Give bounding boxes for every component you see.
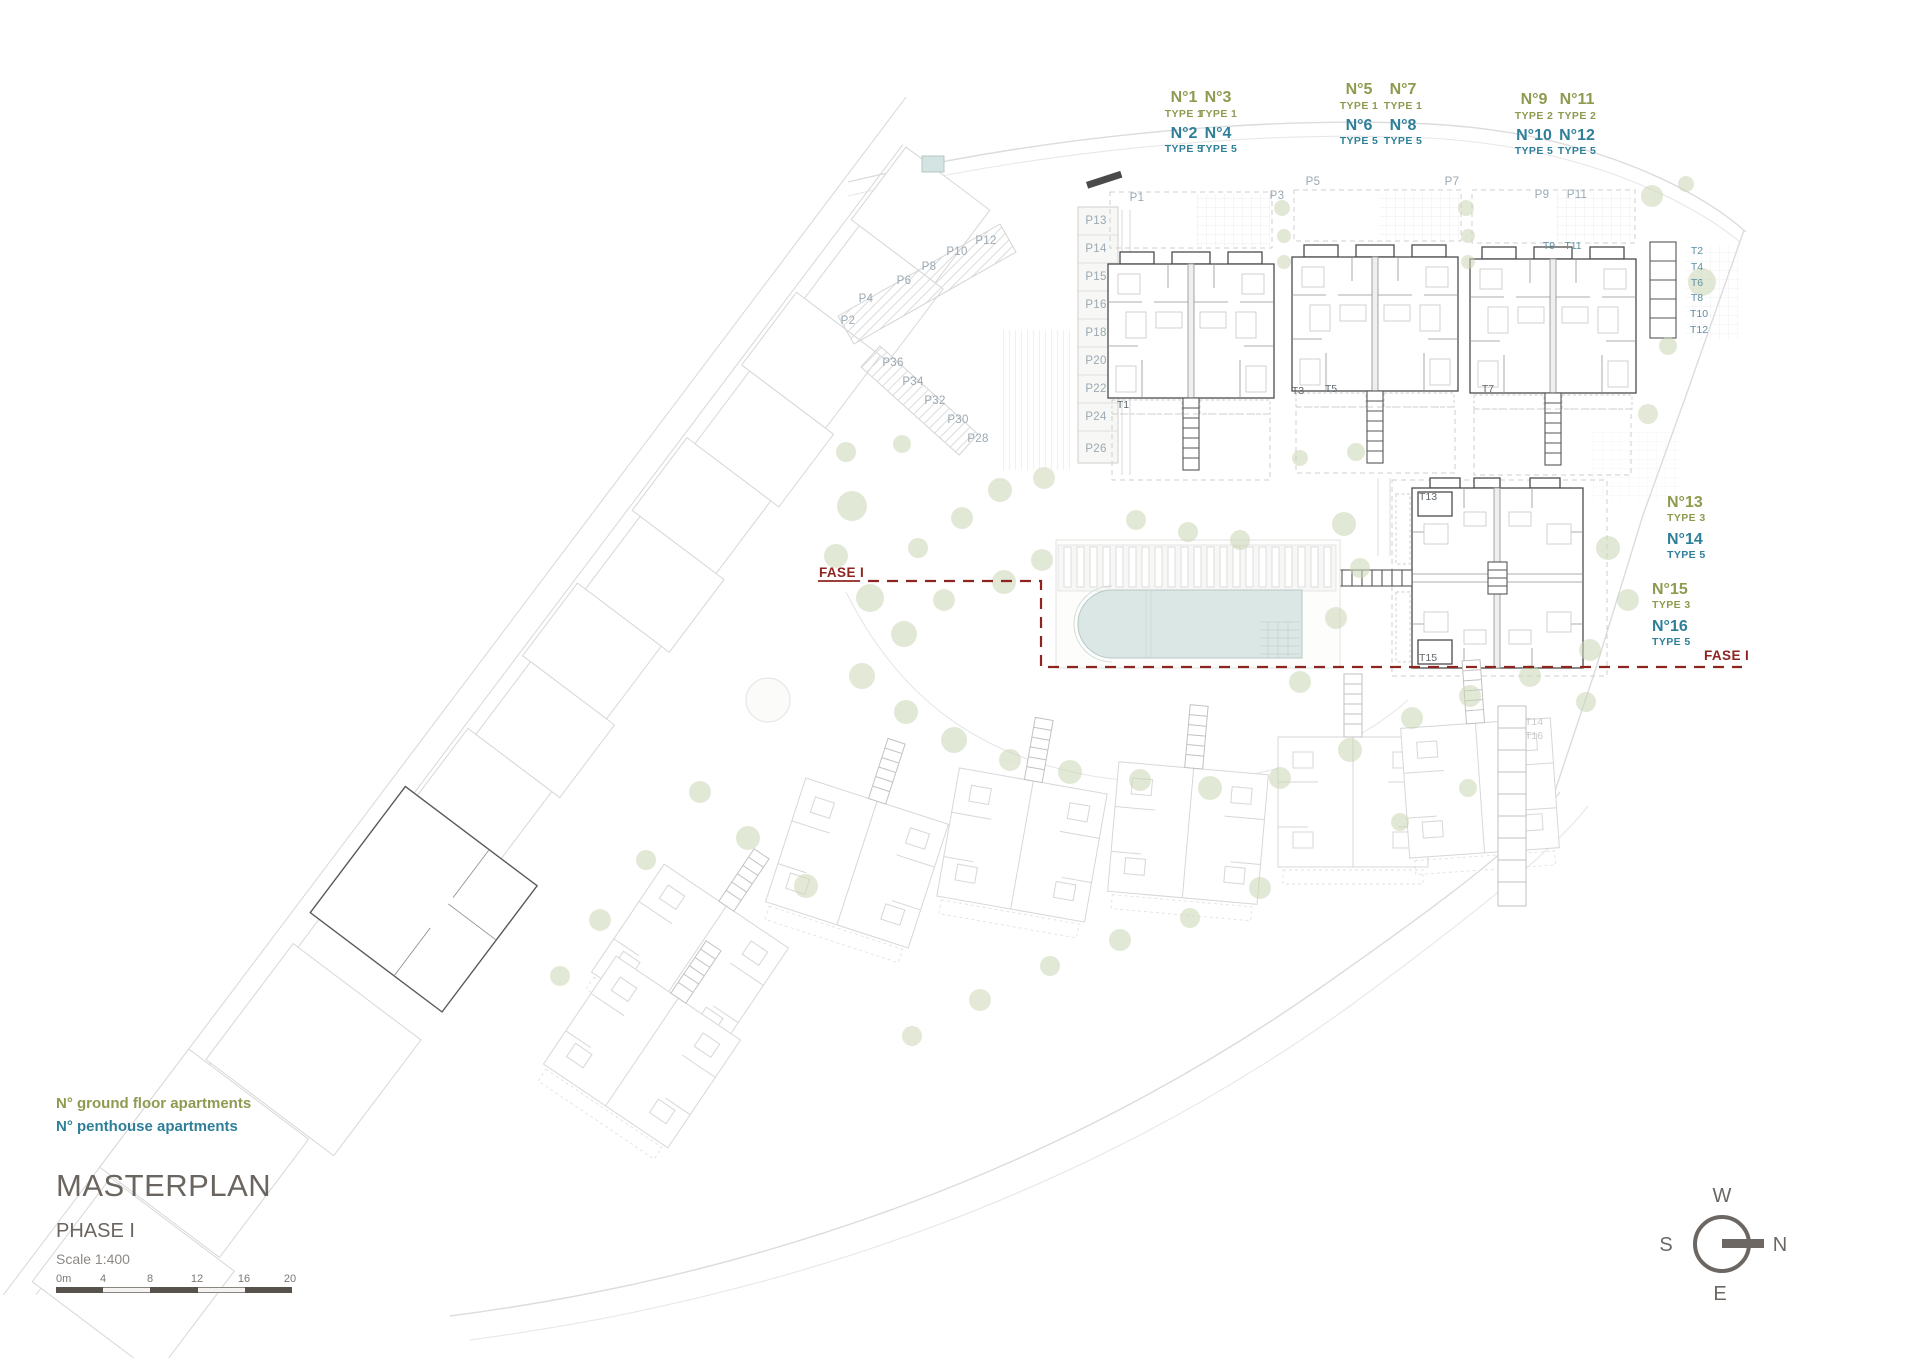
terrace-label: T10	[1690, 308, 1708, 320]
apartment-type-ground: TYPE 1	[1340, 100, 1379, 112]
small-pool	[922, 156, 944, 172]
parking-label: P18	[1085, 327, 1106, 339]
phase-boundary-label-left: FASE I	[819, 565, 864, 580]
parking-label: P22	[1085, 383, 1106, 395]
apartment-type-ground: TYPE 2	[1515, 110, 1554, 122]
parking-label: P24	[1085, 411, 1107, 423]
scale-label: Scale 1:400	[56, 1251, 396, 1267]
page-title: MASTERPLAN	[56, 1168, 396, 1204]
apartment-number-penthouse: N°10	[1516, 127, 1552, 144]
terrace-label: T8	[1691, 292, 1703, 304]
apartment-type-ground: TYPE 1	[1165, 108, 1204, 120]
terrace-label: T3	[1292, 385, 1304, 397]
terrace-label: T16	[1525, 730, 1543, 742]
scale-tick: 0m	[56, 1273, 71, 1285]
parking-label: P34	[902, 376, 924, 388]
parking-label: P28	[967, 433, 988, 445]
legend-ground-floor: N° ground floor apartments	[56, 1092, 396, 1115]
apartment-type-ground: TYPE 3	[1652, 599, 1691, 611]
parking-label: P2	[841, 315, 856, 327]
scale-tick: 8	[147, 1273, 153, 1285]
apartment-number-ground: N°7	[1390, 81, 1417, 98]
parking-label: P12	[975, 235, 996, 247]
apartment-type-penthouse: TYPE 5	[1558, 145, 1597, 157]
scale-bar: 0m 4 8 12 16 20	[56, 1273, 292, 1295]
compass-needle	[1722, 1239, 1764, 1248]
apartment-number-ground: N°5	[1346, 81, 1373, 98]
terrace-label: T1	[1117, 399, 1129, 411]
phase-boundary-label-right: FASE I	[1704, 648, 1749, 663]
apartment-type-penthouse: TYPE 5	[1340, 135, 1379, 147]
parking-label: P3	[1270, 190, 1285, 202]
apartment-number-ground: N°3	[1205, 89, 1232, 106]
apartment-type-penthouse: TYPE 5	[1667, 549, 1706, 561]
apartment-number-penthouse: N°6	[1346, 117, 1373, 134]
terrace-label: T12	[1690, 324, 1708, 336]
compass-east: E	[1713, 1283, 1726, 1305]
terrace-label: T4	[1691, 261, 1703, 273]
apartment-type-penthouse: TYPE 5	[1384, 135, 1423, 147]
apartment-number-ground: N°15	[1652, 581, 1688, 598]
pool-area	[1056, 540, 1340, 668]
stair-strip-east	[1650, 242, 1676, 338]
apartment-type-penthouse: TYPE 5	[1165, 143, 1204, 155]
scale-bar-segments	[56, 1287, 292, 1293]
apartment-type-penthouse: TYPE 5	[1199, 143, 1238, 155]
parking-label: P9	[1535, 189, 1550, 201]
parking-label: P5	[1306, 176, 1321, 188]
scale-tick: 16	[238, 1273, 250, 1285]
terrace-label: T7	[1482, 383, 1494, 395]
apartment-type-penthouse: TYPE 5	[1652, 636, 1691, 648]
legend: N° ground floor apartments N° penthouse …	[56, 1092, 396, 1138]
compass: W S N E	[1648, 1168, 1808, 1323]
terrace-label: T9	[1543, 240, 1555, 252]
scale-tick: 12	[191, 1273, 203, 1285]
parking-label: P4	[859, 293, 874, 305]
parking-label: P30	[947, 414, 968, 426]
parking-label: P1	[1130, 192, 1145, 204]
terrace-label: T15	[1419, 652, 1437, 664]
parking-label: P14	[1085, 243, 1107, 255]
terrace-label: T11	[1564, 240, 1581, 252]
parking-label: P6	[897, 275, 912, 287]
parking-label: P15	[1085, 271, 1106, 283]
parking-label: P11	[1567, 189, 1588, 201]
compass-west: W	[1713, 1185, 1732, 1207]
masterplan-canvas: P1P3P5P7P9P11P13P14P15P16P18P20P22P24P26…	[0, 0, 1920, 1358]
parking-label: P16	[1085, 299, 1106, 311]
phase-label: PHASE I	[56, 1220, 396, 1243]
apartment-number-penthouse: N°4	[1205, 125, 1232, 142]
parking-label: P20	[1085, 355, 1106, 367]
apartment-number-ground: N°1	[1171, 89, 1198, 106]
apartment-number-penthouse: N°14	[1667, 531, 1703, 548]
parking-label: P7	[1445, 176, 1460, 188]
apartment-type-penthouse: TYPE 5	[1515, 145, 1554, 157]
scale-tick: 4	[100, 1273, 106, 1285]
parking-label: P32	[924, 395, 945, 407]
apartment-number-penthouse: N°2	[1171, 125, 1198, 142]
compass-north: N	[1773, 1234, 1787, 1256]
entrance-ramp	[1086, 171, 1122, 189]
terrace-label: T2	[1691, 245, 1703, 257]
terrace-label: T14	[1525, 716, 1543, 728]
terrace-label: T6	[1691, 277, 1703, 289]
apartment-number-ground: N°11	[1560, 91, 1595, 108]
title-block: N° ground floor apartments N° penthouse …	[56, 1092, 396, 1295]
legend-penthouse: N° penthouse apartments	[56, 1115, 396, 1138]
phase1-building-4	[1333, 478, 1607, 676]
terrace-label: T13	[1419, 491, 1437, 503]
parking-label: P10	[946, 246, 967, 258]
compass-south: S	[1659, 1234, 1672, 1256]
apartment-type-ground: TYPE 1	[1199, 108, 1238, 120]
apartment-number-ground: N°9	[1521, 91, 1548, 108]
apartment-type-ground: TYPE 3	[1667, 512, 1706, 524]
parking-label: P36	[882, 357, 903, 369]
apartment-number-penthouse: N°8	[1390, 117, 1417, 134]
apartment-number-penthouse: N°12	[1559, 127, 1595, 144]
phase1-building-1	[1108, 252, 1274, 470]
apartment-number-ground: N°13	[1667, 494, 1703, 511]
apartment-type-ground: TYPE 1	[1384, 100, 1423, 112]
phase2-buildings	[534, 655, 1561, 1162]
apartment-type-ground: TYPE 2	[1558, 110, 1597, 122]
terrace-label: T5	[1325, 383, 1337, 395]
apartment-number-penthouse: N°16	[1652, 618, 1688, 635]
parking-label: P8	[922, 261, 937, 273]
pergola	[1064, 547, 1331, 587]
parking-label: P13	[1085, 215, 1106, 227]
phase1-building-2	[1292, 245, 1458, 463]
parking-label: P26	[1085, 443, 1106, 455]
scale-tick: 20	[284, 1273, 296, 1285]
